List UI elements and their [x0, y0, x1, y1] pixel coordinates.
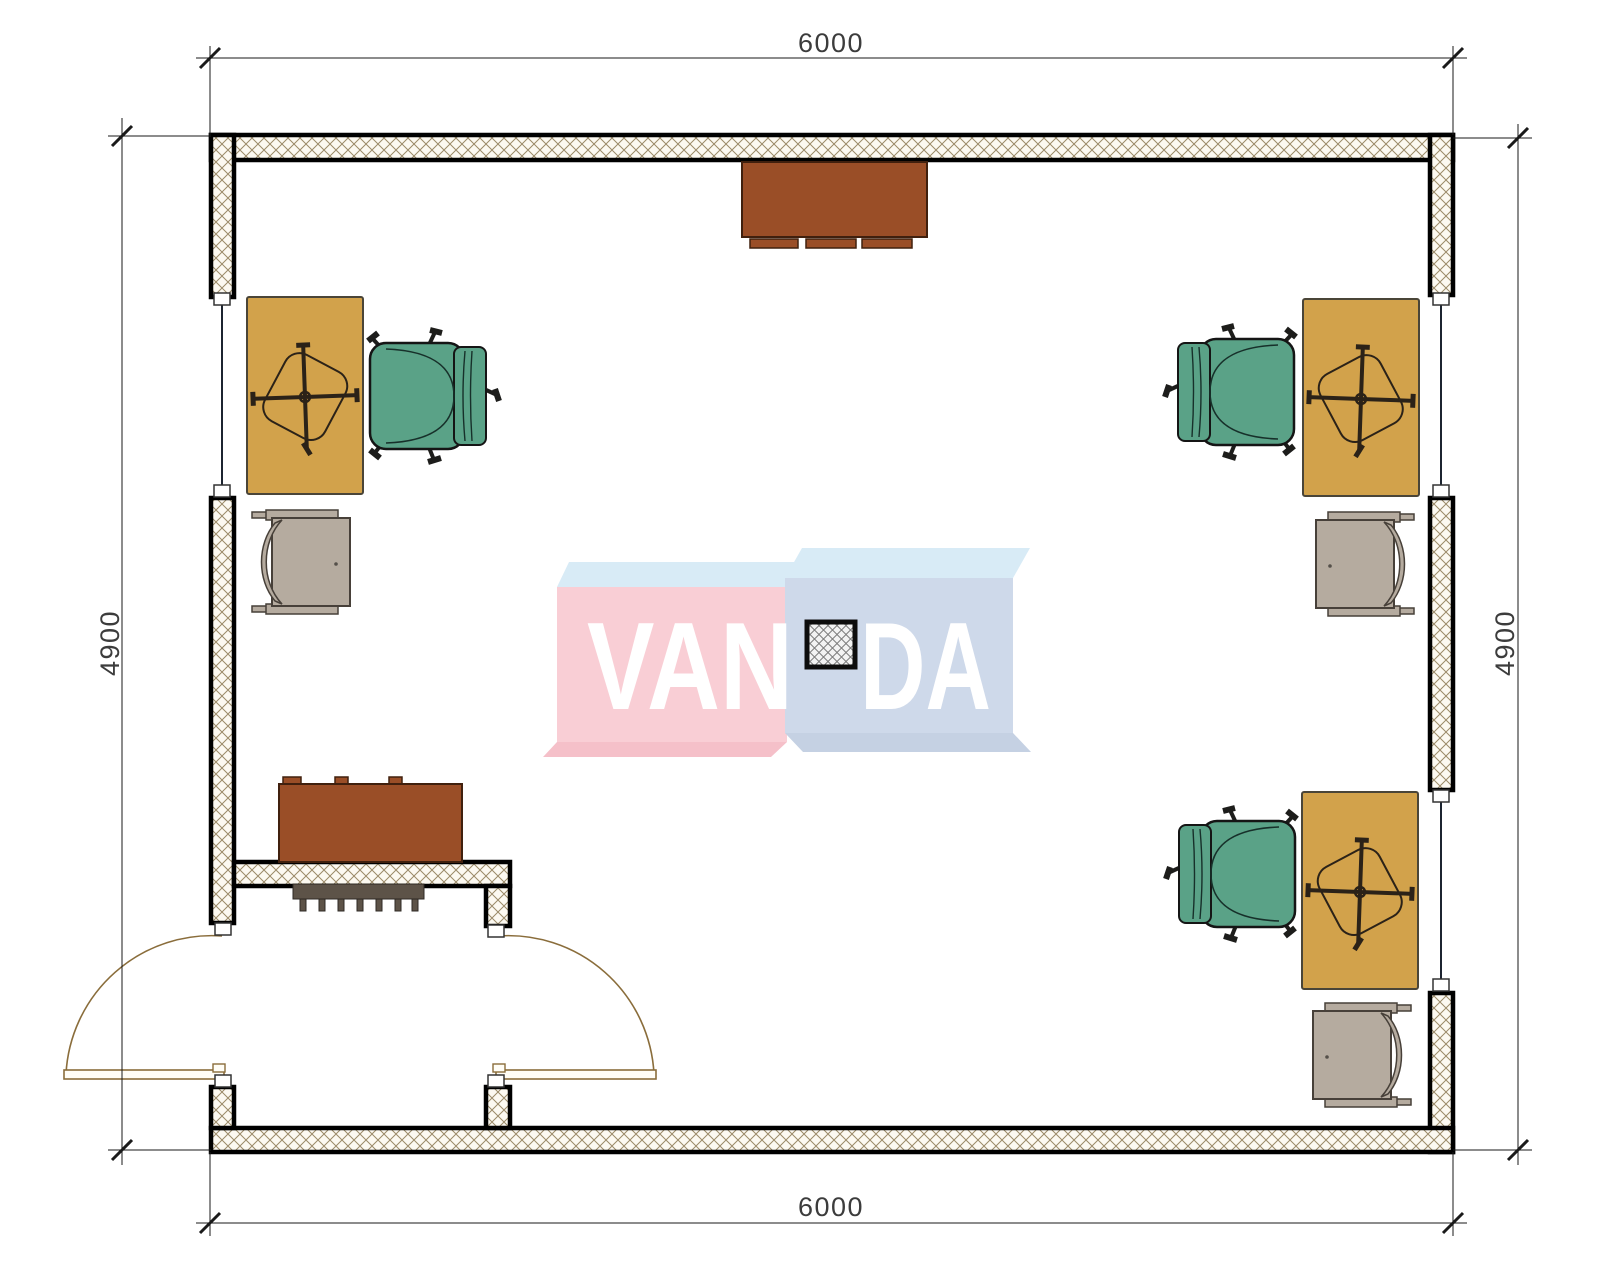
cabinet-entry: [279, 777, 462, 862]
door-jamb-cap-lower-right: [488, 1075, 504, 1087]
dim-label-bottom: 6000: [798, 1192, 864, 1222]
wall-left-middle: [211, 498, 234, 923]
side-chair-top-left: [252, 510, 350, 614]
center-column-stand: [807, 622, 855, 667]
task-chair-top-left: [368, 330, 499, 462]
radiator: [293, 884, 424, 911]
wall-vestibule-partition: [234, 862, 510, 886]
dimension-top: [196, 46, 1467, 135]
door-jamb-cap-upper-left: [215, 923, 231, 935]
door-swing-arc-left: [66, 936, 222, 1074]
task-chair-top-right: [1165, 326, 1296, 458]
side-chair-bottom-right: [1313, 1003, 1411, 1107]
wall-right-middle: [1430, 498, 1453, 790]
side-chair-top-right: [1316, 512, 1414, 616]
logo-left-box-bottom: [543, 742, 787, 757]
window-right-upper: [1433, 293, 1449, 497]
wall-left-upper: [211, 135, 234, 297]
desk-bottom-right: [1294, 792, 1425, 989]
dim-label-right: 4900: [1490, 610, 1520, 676]
task-chair-bottom-right: [1166, 808, 1297, 940]
floor-plan-drawing: VAN DA: [0, 0, 1600, 1280]
cabinet-top-wall-feet: [750, 239, 912, 248]
door-hinge-right: [493, 1064, 505, 1072]
wall-bottom: [211, 1128, 1453, 1152]
floor-plan-page: VAN DA: [0, 0, 1600, 1280]
door-hinge-left: [213, 1064, 225, 1072]
radiator-fins: [300, 899, 418, 911]
wall-right-upper: [1430, 135, 1453, 295]
window-right-lower: [1433, 790, 1449, 991]
cabinet-top-wall: [742, 162, 927, 248]
door-leaf-right: [496, 1070, 656, 1079]
dim-label-top: 6000: [798, 28, 864, 58]
desk-top-left: [239, 297, 370, 494]
door-jamb-cap-lower-left: [215, 1075, 231, 1087]
logo-left-box-top: [557, 562, 799, 587]
entry-doors: [64, 923, 656, 1087]
window-left: [214, 293, 230, 497]
dim-label-left: 4900: [95, 610, 125, 676]
desk-top-right: [1295, 299, 1426, 496]
cabinet-entry-tabs: [283, 777, 402, 784]
door-swing-arc-right: [498, 936, 654, 1074]
logo-text-da: DA: [860, 598, 991, 736]
door-jamb-cap-upper-right: [488, 925, 504, 937]
logo-right-box-top: [785, 548, 1030, 578]
door-leaf-left: [64, 1070, 224, 1079]
wall-vestibule-stub: [486, 886, 510, 926]
vanda-watermark: VAN DA: [543, 548, 1031, 757]
wall-top: [211, 135, 1453, 160]
logo-text-van: VAN: [587, 598, 793, 736]
wall-door-stub-right: [486, 1087, 510, 1128]
wall-door-stub-left: [211, 1087, 234, 1128]
